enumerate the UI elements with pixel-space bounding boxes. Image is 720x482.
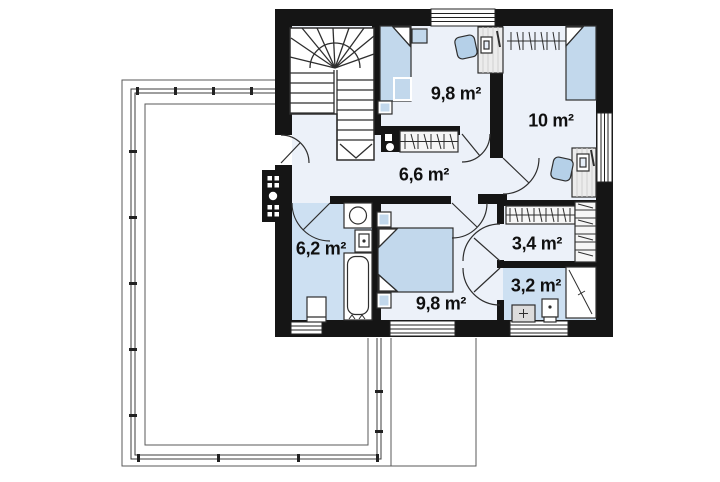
room-label-bedroom-bottom: 9,8 m² [416,294,466,315]
floor-plan: 9,8 m² 10 m² 6,6 m² 6,2 m² 3,4 m² 3,2 m²… [0,0,720,482]
desk [572,148,596,197]
room-label-wc: 3,2 m² [511,276,561,297]
bathtub [344,253,372,320]
nightstand [394,78,411,100]
window-bottom-bedroom [390,321,455,336]
desk-chair [454,34,478,60]
washbasin [350,207,367,224]
shower [566,267,596,318]
window-bottom-left-small [291,322,322,334]
chimney [262,170,292,222]
window-top [431,9,495,26]
sink [512,305,535,322]
room-label-hall: 6,6 m² [399,165,449,186]
shelf-box [412,29,427,43]
desk [478,27,503,73]
room-label-bathroom: 6,2 m² [296,239,346,260]
shelf-unit [575,202,596,262]
washer [307,297,326,322]
window-right [597,113,612,182]
hall-wardrobe [381,131,458,152]
double-bed [378,228,453,292]
room-label-bedroom-right: 10 m² [528,111,574,132]
floor-plan-drawing [0,0,720,482]
room-label-bedroom-top: 9,8 m² [431,84,481,105]
room-label-wardrobe: 3,4 m² [512,234,562,255]
window-bottom-wc [510,321,568,336]
toilet [542,299,558,322]
desk-chair [550,156,574,182]
